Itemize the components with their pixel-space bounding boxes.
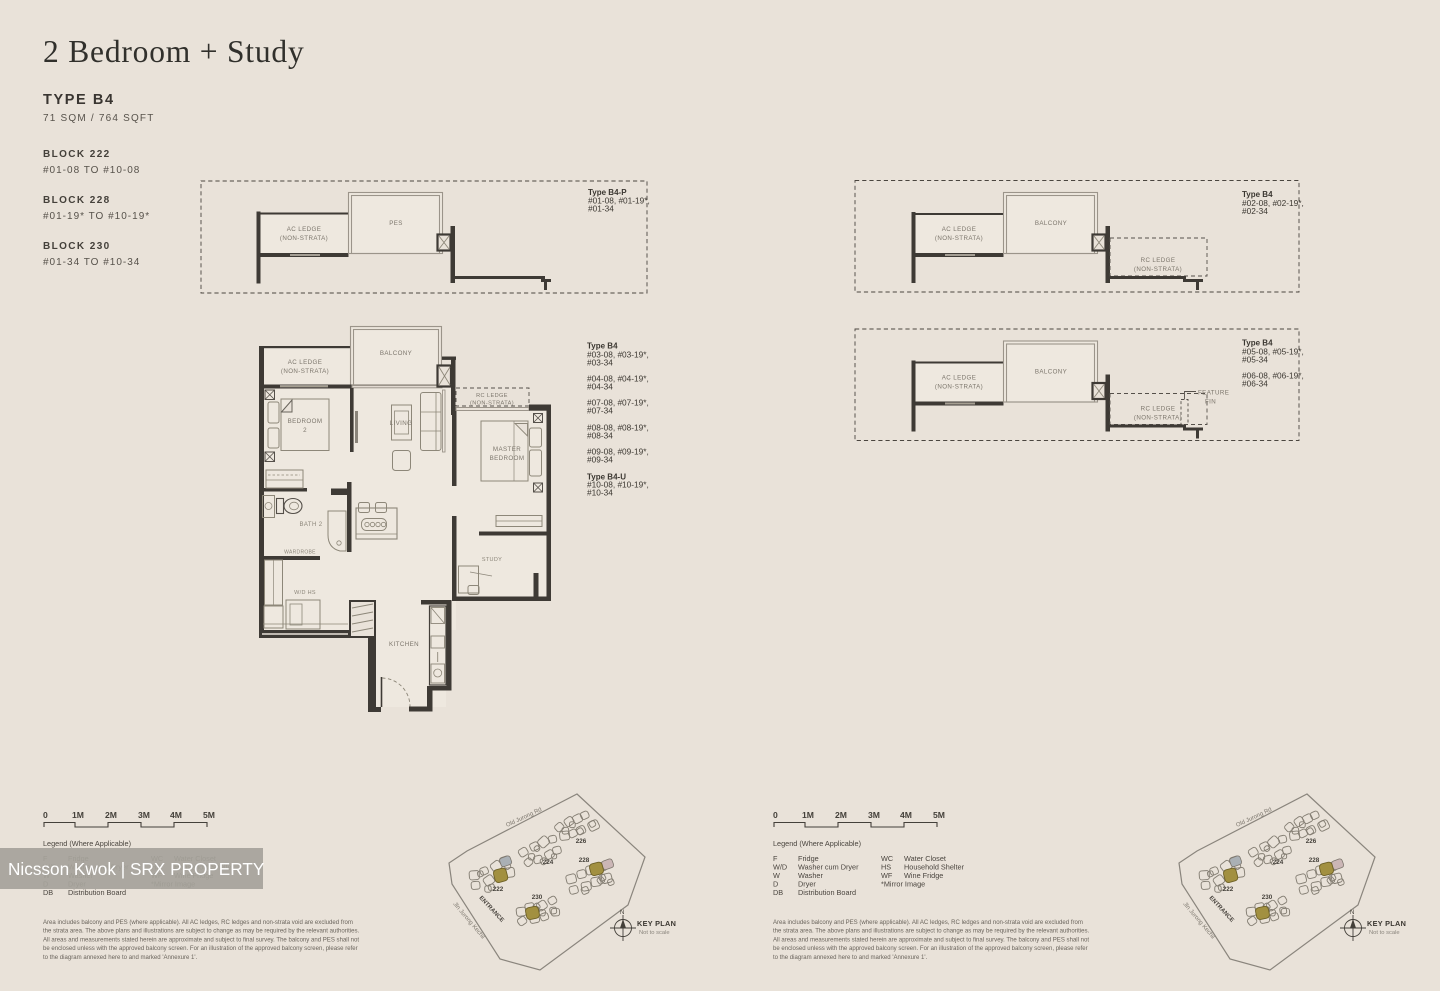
svg-text:W/D HS: W/D HS xyxy=(294,590,316,596)
svg-text:TYPE B4: TYPE B4 xyxy=(43,92,115,108)
svg-text:BALCONY: BALCONY xyxy=(380,350,412,357)
svg-text:BATH 2: BATH 2 xyxy=(300,522,323,528)
svg-text:BLOCK 228: BLOCK 228 xyxy=(43,195,111,206)
svg-text:2: 2 xyxy=(303,427,307,434)
svg-text:LIVING: LIVING xyxy=(390,420,413,427)
svg-text:RC LEDGE: RC LEDGE xyxy=(1141,406,1176,413)
svg-text:BLOCK 230: BLOCK 230 xyxy=(43,241,111,252)
svg-text:#10-34: #10-34 xyxy=(587,488,613,498)
svg-text:#01-19* TO #10-19*: #01-19* TO #10-19* xyxy=(43,211,150,222)
svg-text:PES: PES xyxy=(389,220,403,227)
svg-text:#01-34: #01-34 xyxy=(588,204,614,214)
svg-text:#05-34: #05-34 xyxy=(1242,355,1268,365)
svg-text:FEATURE: FEATURE xyxy=(1198,390,1229,397)
svg-text:(NON-STRATA): (NON-STRATA) xyxy=(935,235,983,242)
svg-text:(NON-STRATA): (NON-STRATA) xyxy=(470,401,514,407)
svg-text:KITCHEN: KITCHEN xyxy=(389,641,419,648)
svg-text:BALCONY: BALCONY xyxy=(1035,220,1067,227)
svg-text:(NON-STRATA): (NON-STRATA) xyxy=(1134,415,1182,422)
svg-text:(NON-STRATA): (NON-STRATA) xyxy=(1134,266,1182,273)
svg-text:#09-34: #09-34 xyxy=(587,455,613,465)
svg-text:#01-08 TO #10-08: #01-08 TO #10-08 xyxy=(43,165,140,176)
svg-text:#06-34: #06-34 xyxy=(1242,379,1268,389)
svg-text:AC LEDGE: AC LEDGE xyxy=(287,226,322,233)
svg-text:#07-34: #07-34 xyxy=(587,406,613,416)
svg-text:RC LEDGE: RC LEDGE xyxy=(1141,257,1176,264)
svg-text:BEDROOM: BEDROOM xyxy=(490,455,525,462)
svg-text:#04-34: #04-34 xyxy=(587,382,613,392)
svg-text:BALCONY: BALCONY xyxy=(1035,369,1067,376)
svg-text:AC LEDGE: AC LEDGE xyxy=(942,375,977,382)
svg-text:#02-34: #02-34 xyxy=(1242,206,1268,216)
svg-text:BEDROOM: BEDROOM xyxy=(288,418,323,425)
svg-text:STUDY: STUDY xyxy=(482,557,502,563)
svg-text:(NON-STRATA): (NON-STRATA) xyxy=(281,368,329,375)
svg-text:(NON-STRATA): (NON-STRATA) xyxy=(935,384,983,391)
svg-text:#01-34 TO #10-34: #01-34 TO #10-34 xyxy=(43,257,140,268)
svg-text:MASTER: MASTER xyxy=(493,446,521,453)
svg-text:Nicsson Kwok | SRX PROPERTY: Nicsson Kwok | SRX PROPERTY xyxy=(8,859,265,879)
svg-text:RC LEDGE: RC LEDGE xyxy=(476,393,508,399)
svg-text:(NON-STRATA): (NON-STRATA) xyxy=(280,235,328,242)
svg-text:FIN: FIN xyxy=(1205,399,1216,406)
svg-text:BLOCK 222: BLOCK 222 xyxy=(43,149,111,160)
svg-text:AC LEDGE: AC LEDGE xyxy=(942,226,977,233)
svg-text:71 SQM / 764 SQFT: 71 SQM / 764 SQFT xyxy=(43,113,155,124)
svg-text:WARDROBE: WARDROBE xyxy=(284,550,316,556)
svg-text:#08-34: #08-34 xyxy=(587,431,613,441)
svg-text:#03-34: #03-34 xyxy=(587,358,613,368)
svg-text:AC LEDGE: AC LEDGE xyxy=(288,359,323,366)
svg-text:2 Bedroom + Study: 2 Bedroom + Study xyxy=(43,34,305,69)
